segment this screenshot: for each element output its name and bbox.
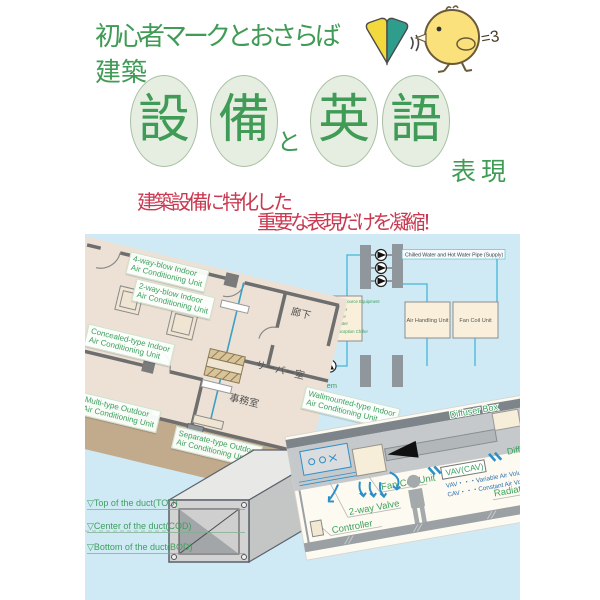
flange-bolt — [242, 503, 247, 508]
supply-pipe-label: Chilled Water and Hot Water Pipe (Supply… — [405, 253, 503, 259]
chick-puff-text: =3 — [480, 28, 501, 48]
fan-coil-unit-box — [352, 444, 386, 476]
title-char-2: 備 — [218, 95, 270, 147]
duct-cod-label: ▽Center of the duct(COD) — [87, 521, 191, 531]
chick-leg — [462, 63, 472, 71]
book-cover-image: 初心者マークとおさらば 建築 設 備 と 英 語 表現 建築設備に特化した 重要… — [0, 0, 600, 600]
duct-tod-label: ▽Top of the duct(TOD) — [87, 498, 178, 508]
chick-eye — [437, 27, 442, 32]
chick-leg — [438, 63, 450, 72]
ahu-label: Air Handling Unit — [407, 318, 449, 324]
title-char-3: 英 — [318, 95, 370, 147]
chick-beak — [416, 34, 426, 42]
title-prefix: 建築 — [95, 52, 147, 89]
tagline: 初心者マークとおさらば — [95, 16, 337, 53]
controller-box — [310, 520, 323, 537]
title-char-circle-2: 備 — [210, 75, 278, 167]
flange-bolt — [242, 555, 247, 560]
title-char-circle-3: 英 — [310, 75, 378, 167]
book-cover: 初心者マークとおさらば 建築 設 備 と 英 語 表現 建築設備に特化した 重要… — [85, 0, 520, 600]
title-char-4: 語 — [390, 95, 442, 147]
pump-icons — [376, 250, 387, 287]
pipe-header-bar — [392, 244, 403, 288]
duct-bod-label: ▽Bottom of the duct(BOD) — [87, 542, 192, 552]
title-suffix: 表現 — [451, 152, 511, 188]
chick-wing — [457, 38, 475, 50]
title-char-circle-4: 語 — [382, 75, 450, 167]
title-char-circle-1: 設 — [130, 75, 198, 167]
flange-bolt — [172, 555, 177, 560]
subtitle-line-2: 重要な表現だけを凝縮！ — [257, 206, 439, 235]
title-connector: と — [277, 122, 301, 157]
chick-icon: =3 — [410, 0, 515, 76]
pipe-header-bar — [360, 245, 371, 289]
title-char-1: 設 — [138, 95, 190, 147]
fcu-label: Fan Coil Unit — [459, 318, 492, 324]
